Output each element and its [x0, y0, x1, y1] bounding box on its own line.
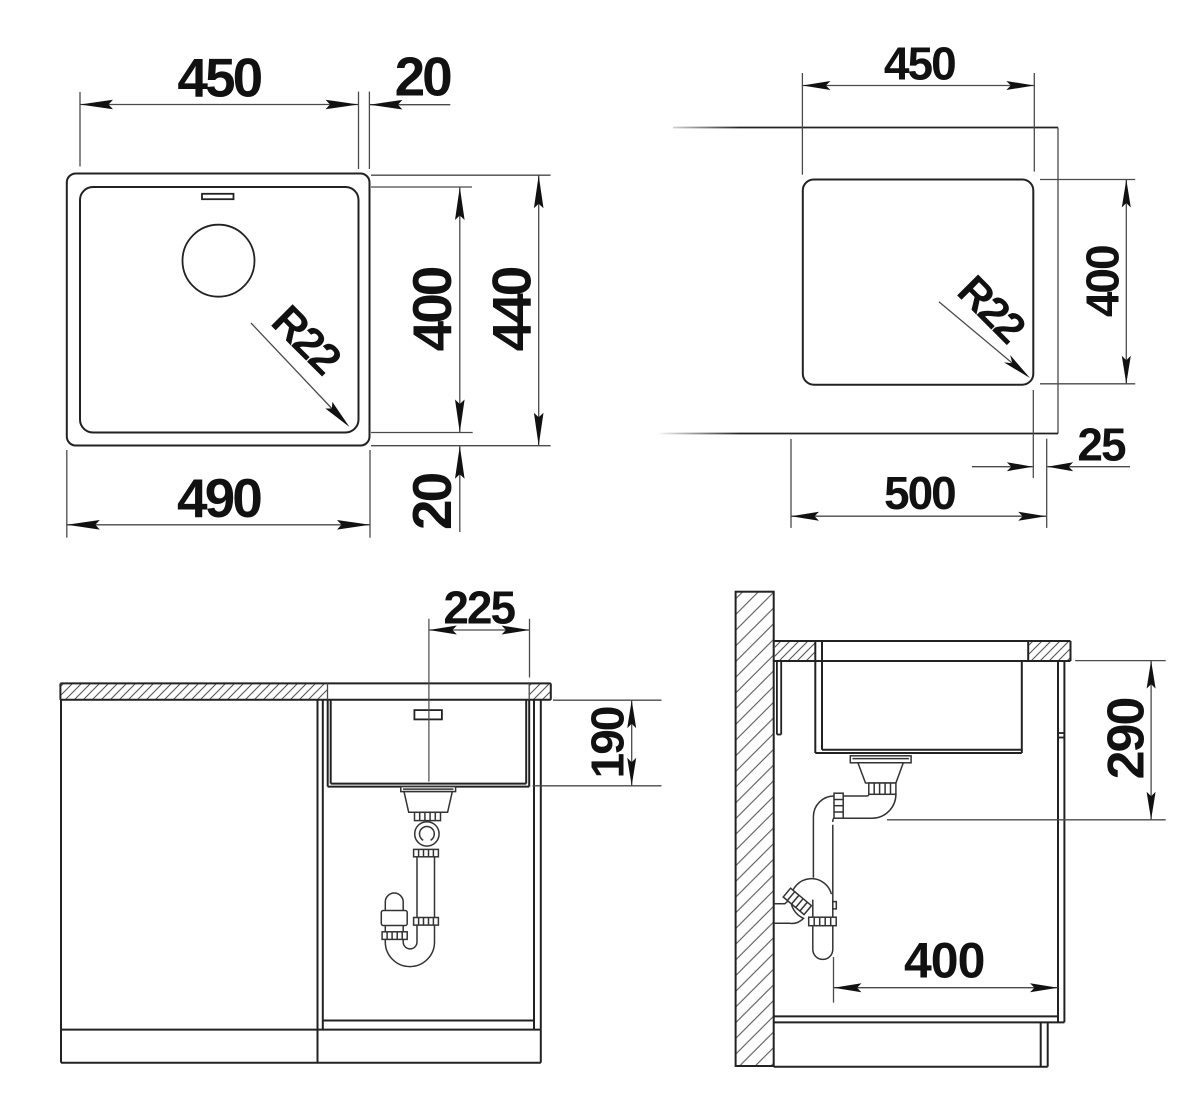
svg-text:450: 450: [177, 47, 261, 109]
svg-text:R22: R22: [262, 296, 350, 384]
svg-text:400: 400: [904, 933, 984, 989]
svg-text:225: 225: [443, 581, 515, 633]
svg-text:20: 20: [395, 45, 452, 107]
svg-text:190: 190: [582, 707, 634, 778]
svg-text:500: 500: [884, 467, 955, 519]
svg-text:490: 490: [177, 467, 261, 529]
svg-text:290: 290: [1097, 699, 1155, 780]
svg-text:20: 20: [401, 473, 463, 530]
svg-text:400: 400: [1077, 246, 1129, 317]
svg-text:25: 25: [1077, 419, 1126, 471]
svg-text:400: 400: [401, 267, 463, 351]
svg-text:450: 450: [884, 38, 955, 90]
svg-text:R22: R22: [948, 266, 1034, 352]
svg-text:440: 440: [481, 267, 543, 351]
